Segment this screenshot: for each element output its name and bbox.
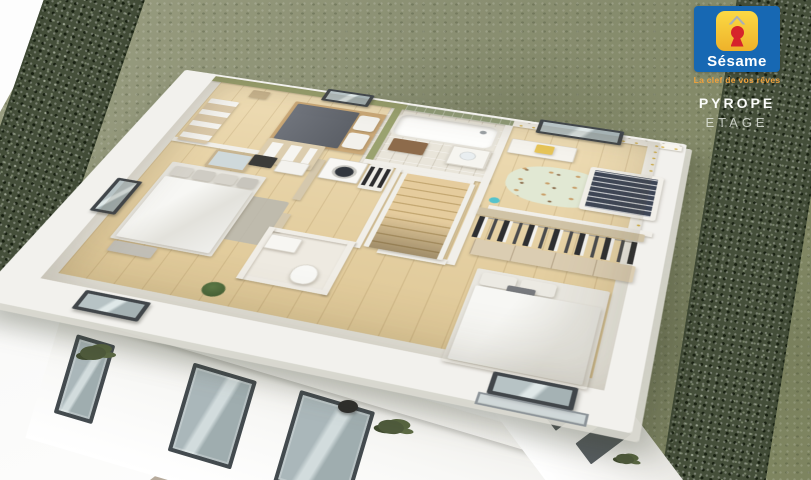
planter-pot bbox=[338, 400, 358, 413]
window-frame bbox=[168, 363, 257, 470]
window-glass bbox=[325, 91, 370, 105]
project-name: PYROPE bbox=[687, 95, 787, 111]
brand-top-text: MAISONS bbox=[687, 0, 787, 5]
logo-square: Sésame bbox=[694, 6, 780, 72]
storage-box bbox=[248, 90, 271, 100]
potted-plant bbox=[198, 280, 229, 298]
floorplan-render-canvas: MAISONS Sésame La clef de vos rêves PYRO… bbox=[0, 0, 811, 480]
dresser-dark bbox=[248, 154, 278, 168]
basin-bowl bbox=[458, 151, 478, 162]
brand-name: Sésame bbox=[694, 53, 780, 70]
logo-yellow-tile bbox=[716, 11, 758, 51]
level-label: ETAGE bbox=[687, 115, 787, 130]
brand-logo: MAISONS Sésame La clef de vos rêves PYRO… bbox=[687, 0, 787, 130]
brand-tagline: La clef de vos rêves bbox=[667, 75, 807, 85]
roof-icon bbox=[729, 16, 746, 25]
window-glass bbox=[173, 367, 252, 464]
toy-ball bbox=[488, 197, 501, 204]
shrub bbox=[80, 346, 106, 360]
window-frame bbox=[273, 390, 375, 480]
washer-door bbox=[329, 164, 360, 181]
